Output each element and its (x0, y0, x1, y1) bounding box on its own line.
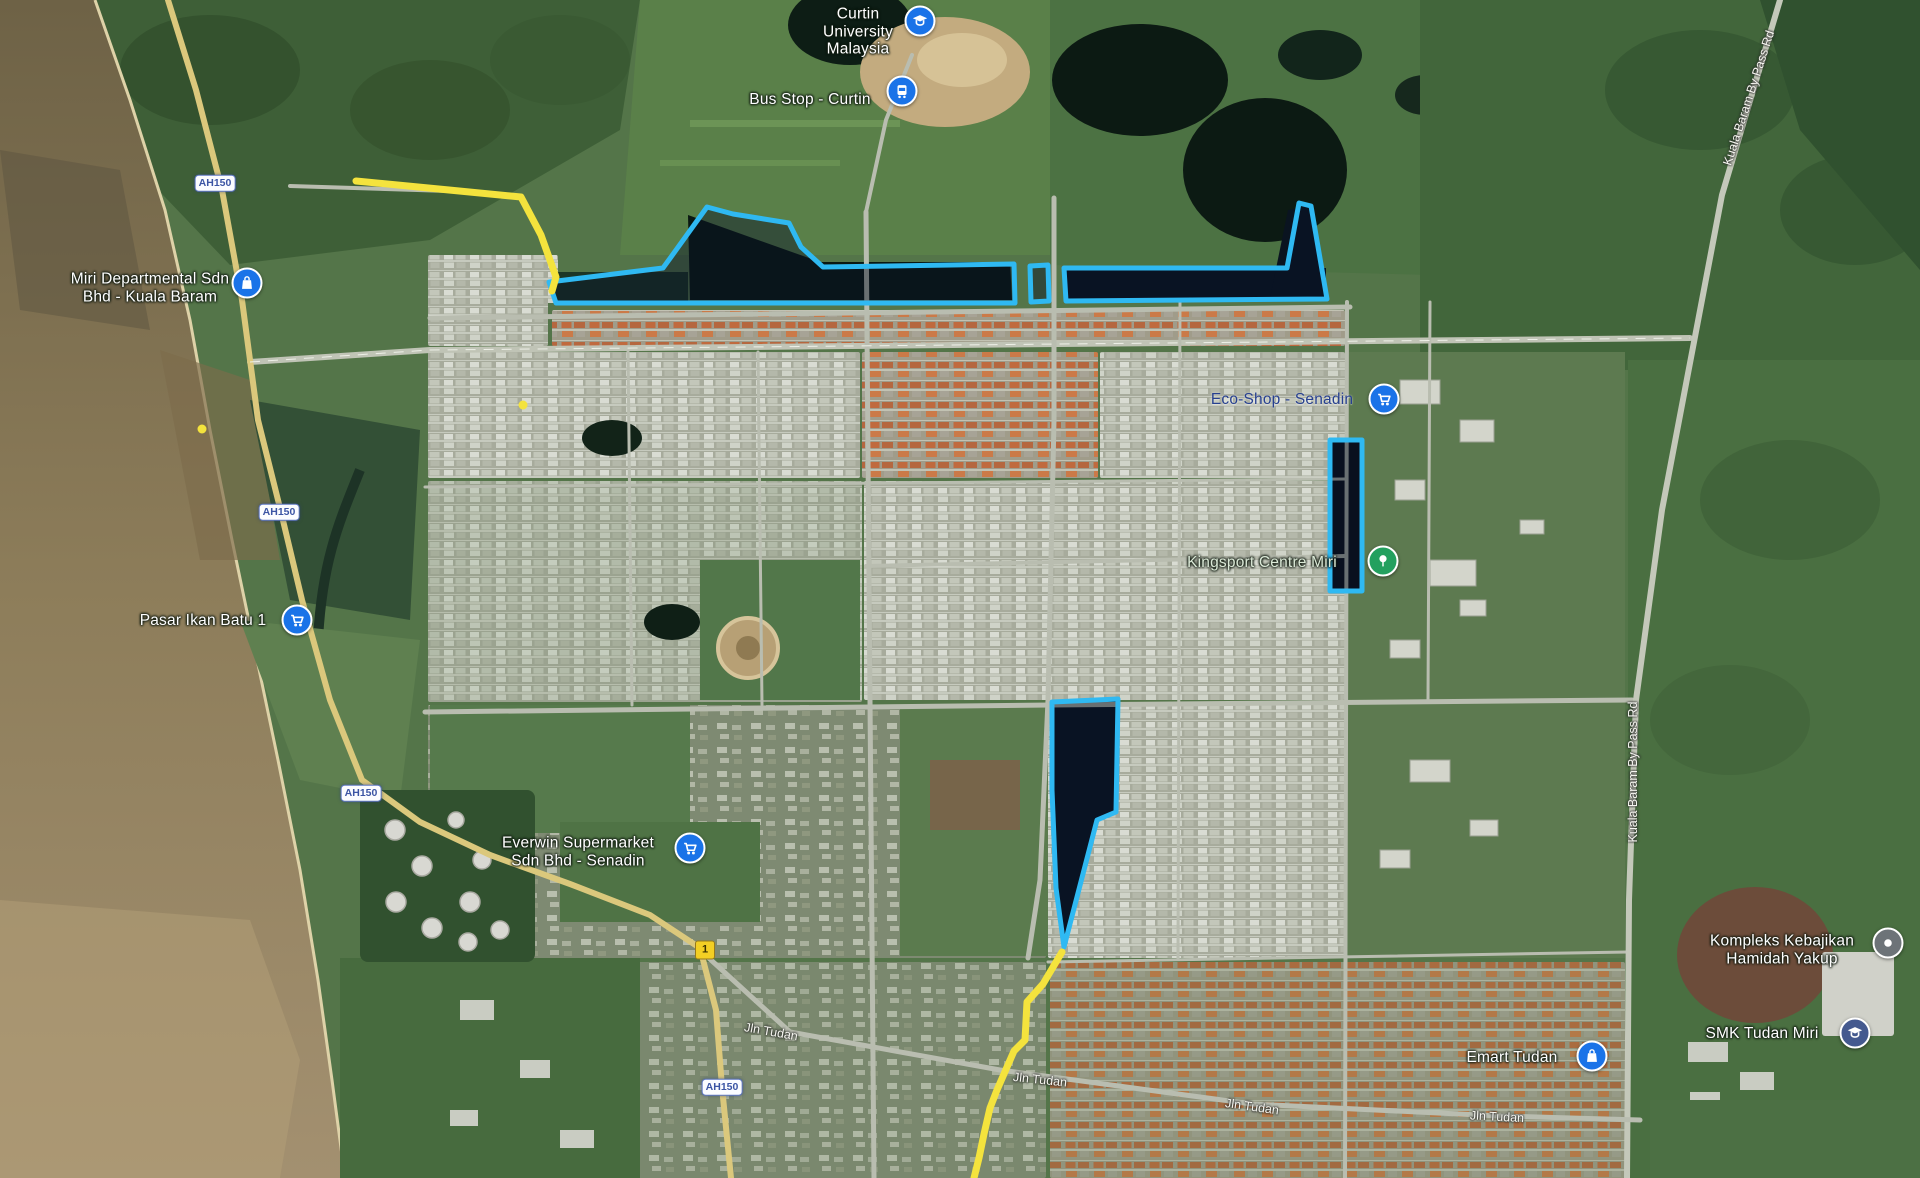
eco-shop-senadin-pin[interactable] (1369, 384, 1400, 415)
tree-icon (1370, 548, 1397, 575)
poi-label-line: Kingsport Centre Miri (1187, 554, 1337, 572)
shopping-bag-icon (234, 270, 261, 297)
miri-departmental-sdn-bhd-kuala-baram-pin[interactable] (232, 268, 263, 299)
curtin-university-malaysia-pin[interactable] (905, 6, 936, 37)
road-label: Jln Tudan (1470, 1109, 1525, 1124)
poi-label-line: Curtin (823, 6, 893, 24)
poi-label-line: Malaysia (823, 41, 893, 59)
route-shield-ah150: AH150 (341, 785, 382, 802)
route-shield-ah150: AH150 (259, 504, 300, 521)
pasar-ikan-batu-1-pin[interactable] (282, 605, 313, 636)
shopping-cart-icon (284, 607, 311, 634)
bus-stop-curtin-label[interactable]: Bus Stop - Curtin (749, 91, 870, 109)
poi-label-line: Bus Stop - Curtin (749, 91, 870, 109)
poi-label-line: Eco-Shop - Senadin (1211, 391, 1353, 409)
kingsport-centre-miri-label[interactable]: Kingsport Centre Miri (1187, 554, 1337, 572)
poi-label-line: Miri Departmental Sdn (71, 270, 229, 288)
route-shield-ah150: AH150 (702, 1079, 743, 1096)
emart-tudan-label[interactable]: Emart Tudan (1467, 1049, 1558, 1067)
poi-label-line: Bhd - Kuala Baram (71, 288, 229, 306)
everwin-supermarket-sdn-bhd-senadin-label[interactable]: Everwin SupermarketSdn Bhd - Senadin (502, 834, 654, 869)
poi-label-line: Emart Tudan (1467, 1049, 1558, 1067)
road-label: Kuala Baram By Pass Rd (1627, 701, 1640, 842)
smk-tudan-miri-pin[interactable] (1840, 1018, 1871, 1049)
road-label: Jln Tudan (743, 1021, 799, 1043)
pasar-ikan-batu-1-label[interactable]: Pasar Ikan Batu 1 (140, 612, 267, 630)
road-label: Jln Tudan (1012, 1071, 1067, 1089)
shopping-cart-icon (1371, 386, 1398, 413)
miri-departmental-sdn-bhd-kuala-baram-label[interactable]: Miri Departmental SdnBhd - Kuala Baram (71, 270, 229, 305)
kompleks-kebajikan-hamidah-yakup-pin[interactable] (1873, 928, 1904, 959)
shopping-bag-icon (1579, 1043, 1606, 1070)
satellite-map-screenshot: CurtinUniversityMalaysiaBus Stop - Curti… (0, 0, 1920, 1178)
road-label: Kuala Baram By Pass Rd (1721, 29, 1776, 167)
route-shield-ah150: AH150 (195, 175, 236, 192)
kompleks-kebajikan-hamidah-yakup-label[interactable]: Kompleks KebajikanHamidah Yakup (1710, 932, 1854, 967)
poi-label-line: University (823, 23, 893, 41)
kingsport-centre-miri-pin[interactable] (1368, 546, 1399, 577)
poi-label-line: Kompleks Kebajikan (1710, 932, 1854, 950)
shopping-cart-icon (677, 835, 704, 862)
bus-icon (889, 78, 916, 105)
curtin-university-malaysia-label[interactable]: CurtinUniversityMalaysia (823, 6, 893, 59)
poi-label-line: SMK Tudan Miri (1705, 1025, 1818, 1043)
poi-label-line: Pasar Ikan Batu 1 (140, 612, 267, 630)
bus-stop-curtin-pin[interactable] (887, 76, 918, 107)
graduation-cap-icon (907, 8, 934, 35)
dot-icon (1875, 930, 1902, 957)
route-shield-1: 1 (695, 941, 715, 960)
road-label: Jln Tudan (1224, 1097, 1279, 1117)
everwin-supermarket-sdn-bhd-senadin-pin[interactable] (675, 833, 706, 864)
smk-tudan-miri-label[interactable]: SMK Tudan Miri (1705, 1025, 1818, 1043)
emart-tudan-pin[interactable] (1577, 1041, 1608, 1072)
poi-label-line: Everwin Supermarket (502, 834, 654, 852)
poi-label-line: Sdn Bhd - Senadin (502, 852, 654, 870)
graduation-cap-icon (1842, 1020, 1869, 1047)
map-labels-layer: CurtinUniversityMalaysiaBus Stop - Curti… (0, 0, 1920, 1178)
eco-shop-senadin-label[interactable]: Eco-Shop - Senadin (1211, 391, 1353, 409)
poi-label-line: Hamidah Yakup (1710, 950, 1854, 968)
